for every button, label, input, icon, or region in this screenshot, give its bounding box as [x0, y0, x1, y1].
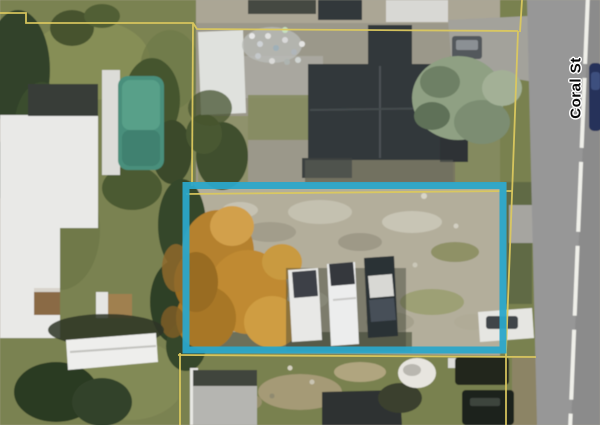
swimming-pool: [102, 70, 164, 175]
coral-st-road: [527, 0, 600, 425]
car-on-road: [589, 63, 600, 131]
parked-vehicles: [286, 256, 406, 352]
left-dark-roof: [28, 84, 98, 116]
map-viewport[interactable]: Coral St: [0, 0, 600, 425]
aerial-photo: [0, 0, 600, 425]
